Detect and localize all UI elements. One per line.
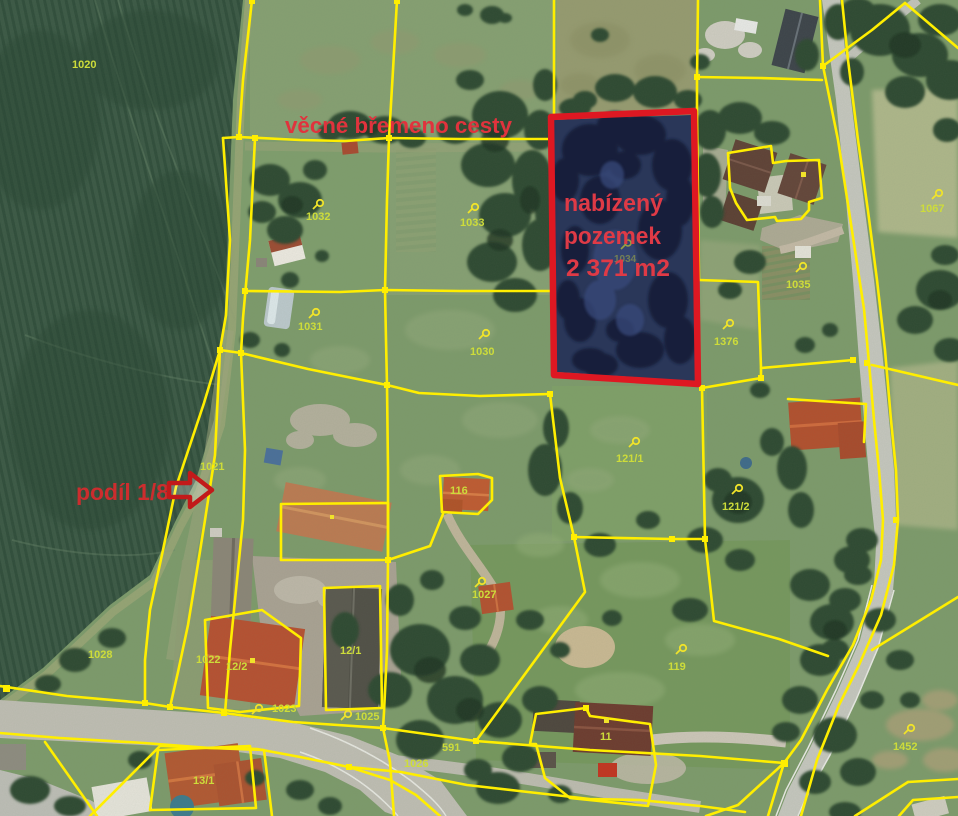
svg-text:1025: 1025	[355, 711, 379, 723]
svg-text:13/1: 13/1	[193, 775, 214, 787]
svg-text:121/2: 121/2	[722, 501, 750, 513]
svg-text:121/1: 121/1	[616, 453, 644, 465]
svg-text:1026: 1026	[404, 758, 428, 770]
svg-text:1022: 1022	[196, 654, 220, 666]
svg-text:podíl 1/8: podíl 1/8	[76, 479, 169, 505]
svg-text:119: 119	[668, 661, 686, 673]
svg-text:1021: 1021	[200, 461, 224, 473]
svg-text:1028: 1028	[88, 649, 112, 661]
svg-text:11: 11	[600, 731, 612, 743]
svg-text:1027: 1027	[472, 589, 496, 601]
svg-text:1032: 1032	[306, 211, 330, 223]
svg-text:2 371 m2: 2 371 m2	[566, 255, 670, 282]
svg-text:591: 591	[442, 742, 460, 754]
svg-text:1020: 1020	[72, 59, 96, 71]
svg-text:věcné břemeno cesty: věcné břemeno cesty	[285, 113, 513, 138]
svg-text:116: 116	[450, 485, 468, 497]
svg-text:1376: 1376	[714, 336, 738, 348]
svg-text:pozemek: pozemek	[564, 223, 662, 250]
svg-text:1023: 1023	[272, 703, 296, 715]
svg-text:1030: 1030	[470, 346, 494, 358]
svg-text:1452: 1452	[893, 741, 917, 753]
svg-text:1033: 1033	[460, 217, 484, 229]
svg-text:1067: 1067	[920, 203, 944, 215]
svg-text:1035: 1035	[786, 279, 810, 291]
svg-text:12/1: 12/1	[340, 645, 361, 657]
svg-text:1031: 1031	[298, 321, 322, 333]
svg-text:12/2: 12/2	[226, 661, 247, 673]
svg-text:nabízený: nabízený	[564, 190, 664, 217]
